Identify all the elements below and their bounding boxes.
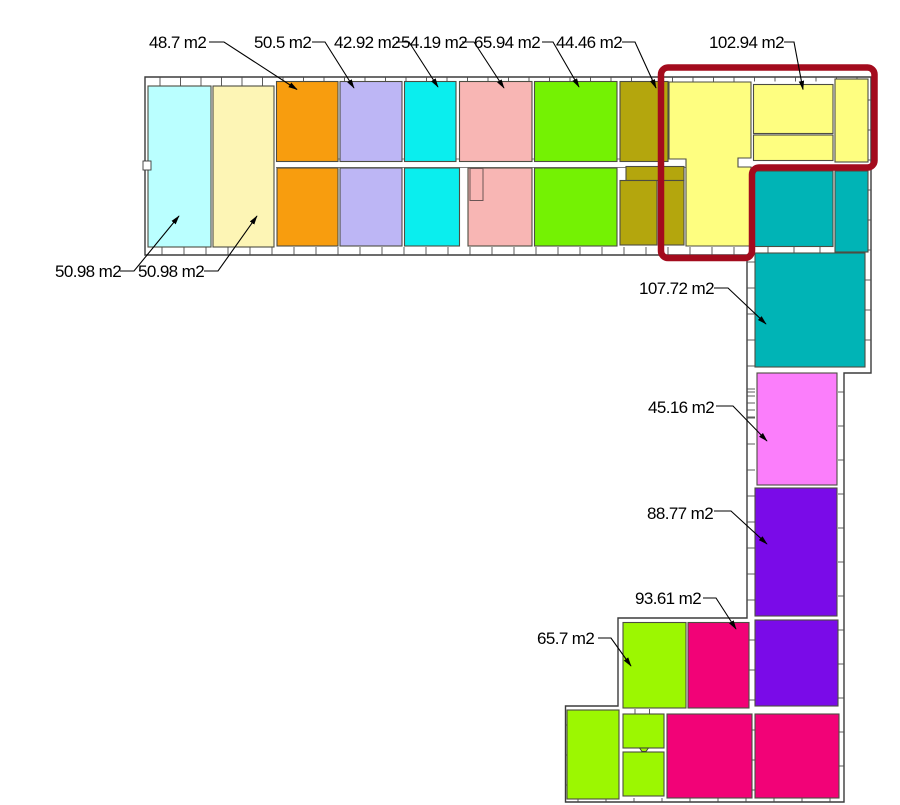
svg-text:65.7 m2: 65.7 m2 xyxy=(537,629,594,648)
svg-text:102.94 m2: 102.94 m2 xyxy=(709,33,784,52)
svg-text:50.5 m2: 50.5 m2 xyxy=(254,33,311,52)
svg-text:88.77 m2: 88.77 m2 xyxy=(647,504,713,523)
svg-text:93.61 m2: 93.61 m2 xyxy=(635,589,701,608)
svg-text:107.72 m2: 107.72 m2 xyxy=(639,279,714,298)
svg-text:42.92 m2: 42.92 m2 xyxy=(334,33,400,52)
svg-text:54.19 m2: 54.19 m2 xyxy=(401,33,467,52)
svg-text:65.94 m2: 65.94 m2 xyxy=(474,33,540,52)
svg-text:45.16 m2: 45.16 m2 xyxy=(648,398,714,417)
svg-text:48.7 m2: 48.7 m2 xyxy=(149,33,206,52)
svg-text:50.98 m2: 50.98 m2 xyxy=(138,262,204,281)
svg-text:50.98 m2: 50.98 m2 xyxy=(55,262,121,281)
svg-text:44.46 m2: 44.46 m2 xyxy=(556,33,622,52)
